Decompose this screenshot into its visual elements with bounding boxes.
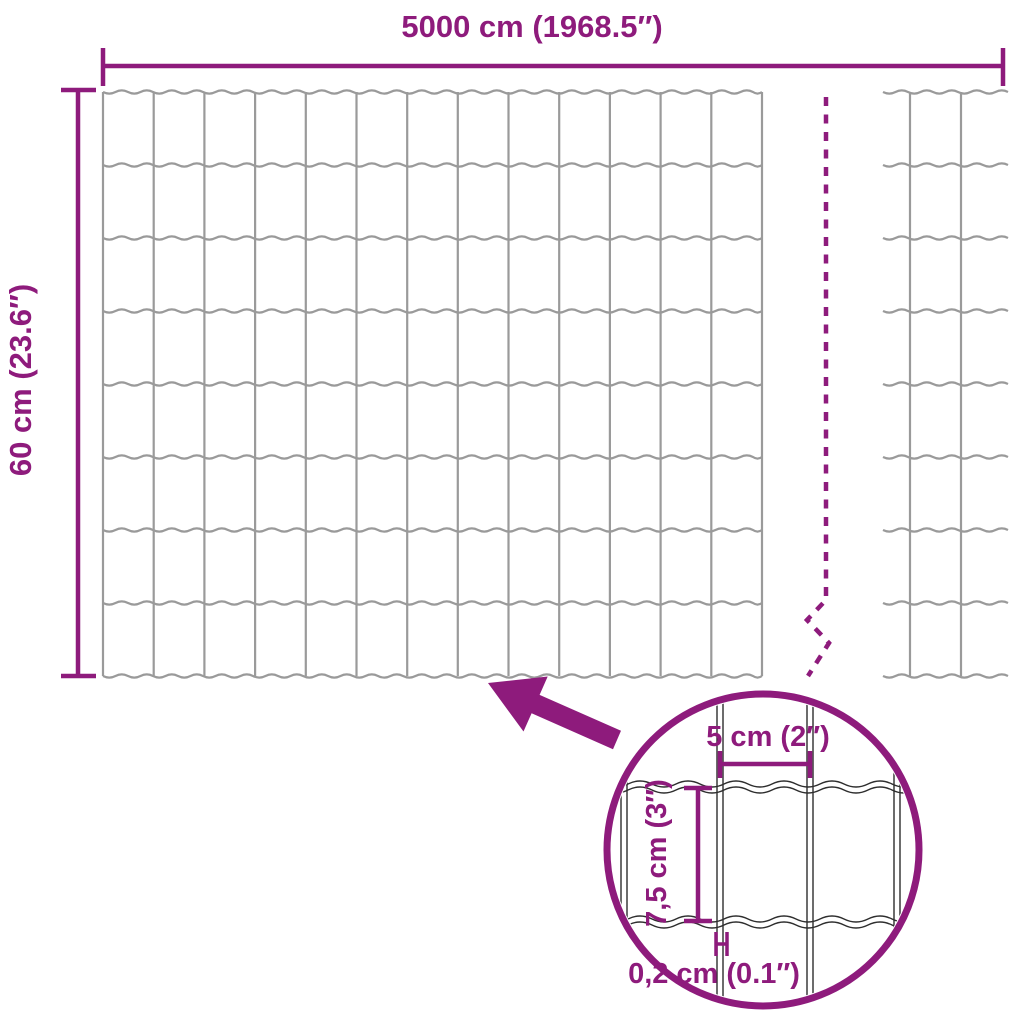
mesh-wire-horizontal bbox=[883, 601, 1008, 604]
mesh-wire-horizontal bbox=[883, 674, 1008, 677]
mesh-wire-horizontal bbox=[883, 90, 1008, 93]
mesh-wire-horizontal bbox=[883, 382, 1008, 385]
mesh-wire-horizontal bbox=[103, 236, 762, 239]
mesh-wire-horizontal bbox=[103, 90, 762, 93]
mesh-wire-horizontal bbox=[103, 382, 762, 385]
height-dimension: 60 cm (23.6″) bbox=[3, 90, 96, 676]
width-dimension: 5000 cm (1968.5″) bbox=[103, 9, 1003, 86]
fence-mesh-main bbox=[103, 90, 762, 677]
mesh-wire-horizontal bbox=[883, 163, 1008, 166]
mesh-wire-horizontal bbox=[103, 163, 762, 166]
cell-width-label: 5 cm (2″) bbox=[706, 721, 830, 753]
mesh-wire-horizontal bbox=[103, 601, 762, 604]
break-line bbox=[807, 97, 829, 676]
mesh-wire-horizontal bbox=[883, 236, 1008, 239]
mesh-wire-horizontal bbox=[883, 528, 1008, 531]
mesh-wire-horizontal bbox=[883, 309, 1008, 312]
cell-height-label: 7,5 cm (3″) bbox=[641, 779, 673, 927]
zoom-arrow-icon bbox=[488, 677, 621, 750]
mesh-wire-horizontal bbox=[103, 455, 762, 458]
mesh-wire-horizontal bbox=[883, 455, 1008, 458]
mesh-wire-horizontal bbox=[103, 309, 762, 312]
fence-mesh-continuation bbox=[883, 90, 1008, 677]
detail-view: 5 cm (2″) 7,5 cm (3″) 0,2 cm (0.1″) bbox=[604, 692, 922, 1008]
fence-dimension-diagram: 5000 cm (1968.5″) 60 cm (23.6″) 5 cm (2″… bbox=[0, 0, 1024, 1024]
mesh-wire-horizontal bbox=[103, 528, 762, 531]
wire-diameter-label: 0,2 cm (0.1″) bbox=[628, 958, 800, 990]
height-dimension-label: 60 cm (23.6″) bbox=[3, 284, 38, 476]
width-dimension-label: 5000 cm (1968.5″) bbox=[401, 9, 662, 44]
diagram-canvas: 5000 cm (1968.5″) 60 cm (23.6″) 5 cm (2″… bbox=[0, 0, 1024, 1024]
mesh-wire-horizontal bbox=[103, 674, 762, 677]
